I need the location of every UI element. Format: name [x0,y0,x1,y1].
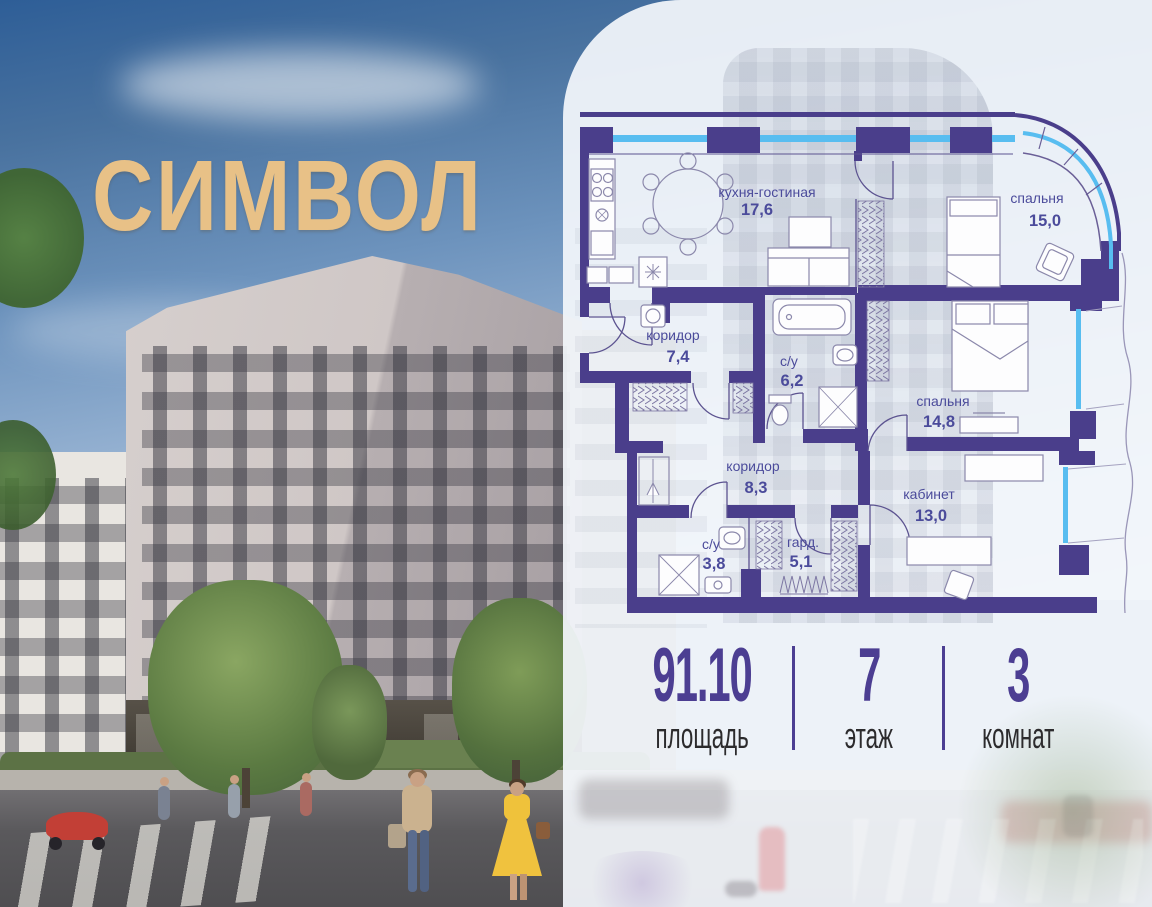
room-label-wardrobe: гард. [787,534,819,550]
room-label-kitchen-living: кухня-гостиная [718,184,815,200]
leg [520,874,527,900]
torso [504,794,530,820]
brand-logo: СИМВОЛ [92,146,483,246]
room-label-office: кабинет [903,486,955,502]
stat-floor: 7 этаж [795,640,942,765]
watermark-flowers [577,851,707,907]
handbag [536,822,550,839]
stat-area-value: 91.10 [653,640,752,712]
watermark-car [1001,801,1152,843]
leg [408,830,417,892]
stat-rooms: 3 комнат [945,640,1092,765]
room-label-bathroom-1: с/у [780,353,798,369]
tree [312,665,387,780]
room-area-bathroom-2: 3,8 [703,555,726,573]
red-scooter [46,812,108,840]
closet-rail [780,576,828,594]
room-label-bedroom-2: спальня [916,393,969,409]
apartment-stats: 91.10 площадь 7 этаж 3 комнат [612,640,1092,765]
room-area-kitchen-living: 17,6 [741,201,773,219]
dress [492,818,542,876]
woman-beige-jacket [388,772,458,904]
room-area-corridor-1: 7,4 [667,348,691,366]
woman-yellow-dress [482,782,562,904]
room-area-wardrobe: 5,1 [790,553,813,571]
room-area-bedroom-1: 15,0 [1029,212,1061,230]
room-area-office: 13,0 [915,507,947,525]
torso [402,785,432,833]
room-label-corridor-2: коридор [726,458,780,474]
stat-rooms-label: комнат [982,718,1054,754]
room-label-corridor-1: коридор [646,327,700,343]
cloud [120,50,480,120]
pedestrian-head [160,777,169,786]
floor-plan: кухня-гостиная 17,6 спальня 15,0 коридор… [575,75,1140,635]
head [510,782,524,796]
room-area-corridor-2: 8,3 [745,479,768,497]
watermark-crosswalk [853,819,1143,903]
pedestrian [158,786,170,820]
stat-area: 91.10 площадь [612,640,792,765]
watermark-dog [725,881,757,897]
room-area-bedroom-2: 14,8 [923,413,955,431]
leg [510,874,517,900]
pedestrian [300,782,312,816]
stat-floor-label: этаж [845,718,893,754]
watermark-pedestrian [759,827,785,891]
room-label-bedroom-1: спальня [1010,190,1063,206]
watermark-pedestrian [1063,795,1093,837]
pedestrian-head [302,773,311,782]
pedestrian-head [230,775,239,784]
tree-trunk [242,768,250,808]
head [410,772,425,787]
room-area-bathroom-1: 6,2 [781,372,804,390]
tree [148,580,343,795]
listing-card-screenshot: СИМВОЛ [0,0,1152,907]
pedestrian [228,784,240,818]
stat-area-label: площадь [655,718,748,754]
leg [420,830,429,892]
watermark-car [579,779,729,819]
room-label-bathroom-2: с/у [702,536,720,552]
stat-rooms-value: 3 [1007,640,1029,712]
stat-floor-value: 7 [858,640,880,712]
